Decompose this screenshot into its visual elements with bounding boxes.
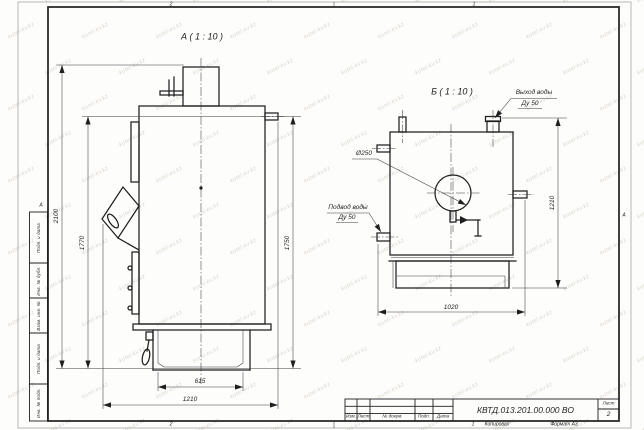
margin-graph-podp-data-1: Подп. и дата — [36, 223, 40, 253]
zone-marker-bottom-right: 1 — [472, 422, 475, 427]
zone-marker-row-right: А — [622, 214, 625, 219]
margin-graph-inv-podl: Инв. № подл. — [36, 388, 40, 418]
title-block-doc-number: КВТД.013.201.00.000 ВО — [477, 405, 574, 414]
dim-b-height: 1210 — [550, 196, 557, 210]
view-b-title: Б ( 1 : 10 ) — [431, 88, 473, 97]
title-block-sheet-number: 2 — [607, 412, 611, 419]
footer-format-label: Формат А3 — [550, 422, 577, 427]
title-block-sheet-label: Лист — [603, 401, 615, 406]
drawing-canvas: kotel-kv.kzkotel-kv.kzkotel-kv.kzkotel-k… — [0, 0, 644, 430]
view-b-geometry — [371, 110, 534, 298]
label-water-outlet-dn: Ду 50 — [522, 100, 539, 107]
label-water-inlet: Подвод воды — [328, 204, 367, 211]
footer-copied-label: Копировал — [485, 422, 510, 427]
view-a-title: А ( 1 : 10 ) — [181, 33, 223, 42]
dim-b-width: 1020 — [444, 304, 458, 311]
dim-a-base-width: 615 — [195, 379, 206, 386]
margin-graph-inv-dubl: Инв. № дубл. — [36, 266, 40, 295]
title-block-col-list: Лист — [358, 415, 370, 420]
zone-marker-top-left: 2 — [170, 2, 173, 7]
zone-marker-top-right: 1 — [473, 2, 476, 7]
margin-graph-vzam-inv: Взам. инв. № — [36, 301, 40, 331]
view-a-geometry — [102, 58, 287, 384]
zone-marker-bottom-left: 2 — [170, 422, 173, 427]
dim-a-total-height: 2100 — [54, 209, 61, 223]
drawing-geometry — [0, 0, 644, 430]
title-block-col-dokum: № докум. — [382, 415, 402, 420]
title-block-col-data: Дата — [437, 415, 449, 420]
dim-b-diameter: Ø250 — [356, 150, 372, 157]
zone-marker-row-left: А — [39, 204, 42, 209]
margin-graph-podp-data-2: Подп. и дата — [36, 344, 40, 374]
title-block-col-podp: Подп. — [418, 415, 430, 420]
sheet-frame — [18, 2, 631, 428]
title-block-col-izm: Изм. — [346, 415, 356, 420]
label-water-inlet-dn: Ду 50 — [339, 214, 356, 221]
label-water-outlet: Выход воды — [516, 90, 553, 97]
dim-a-1770: 1770 — [80, 236, 87, 250]
dim-a-depth: 1210 — [183, 397, 197, 404]
dim-a-1750: 1750 — [285, 236, 292, 250]
view-a-dimensions — [56, 65, 301, 409]
